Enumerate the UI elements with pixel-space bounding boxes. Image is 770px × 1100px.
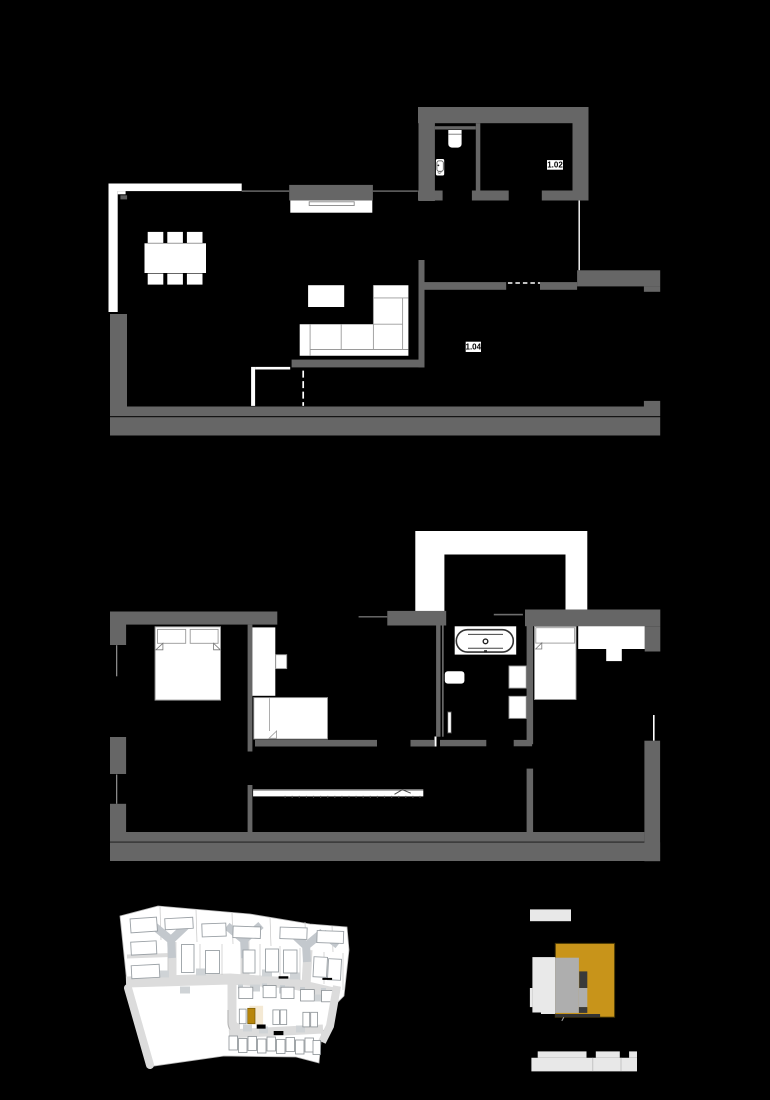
svg-text:1.04: 1.04 bbox=[466, 343, 482, 352]
svg-text:1.02: 1.02 bbox=[547, 161, 563, 170]
